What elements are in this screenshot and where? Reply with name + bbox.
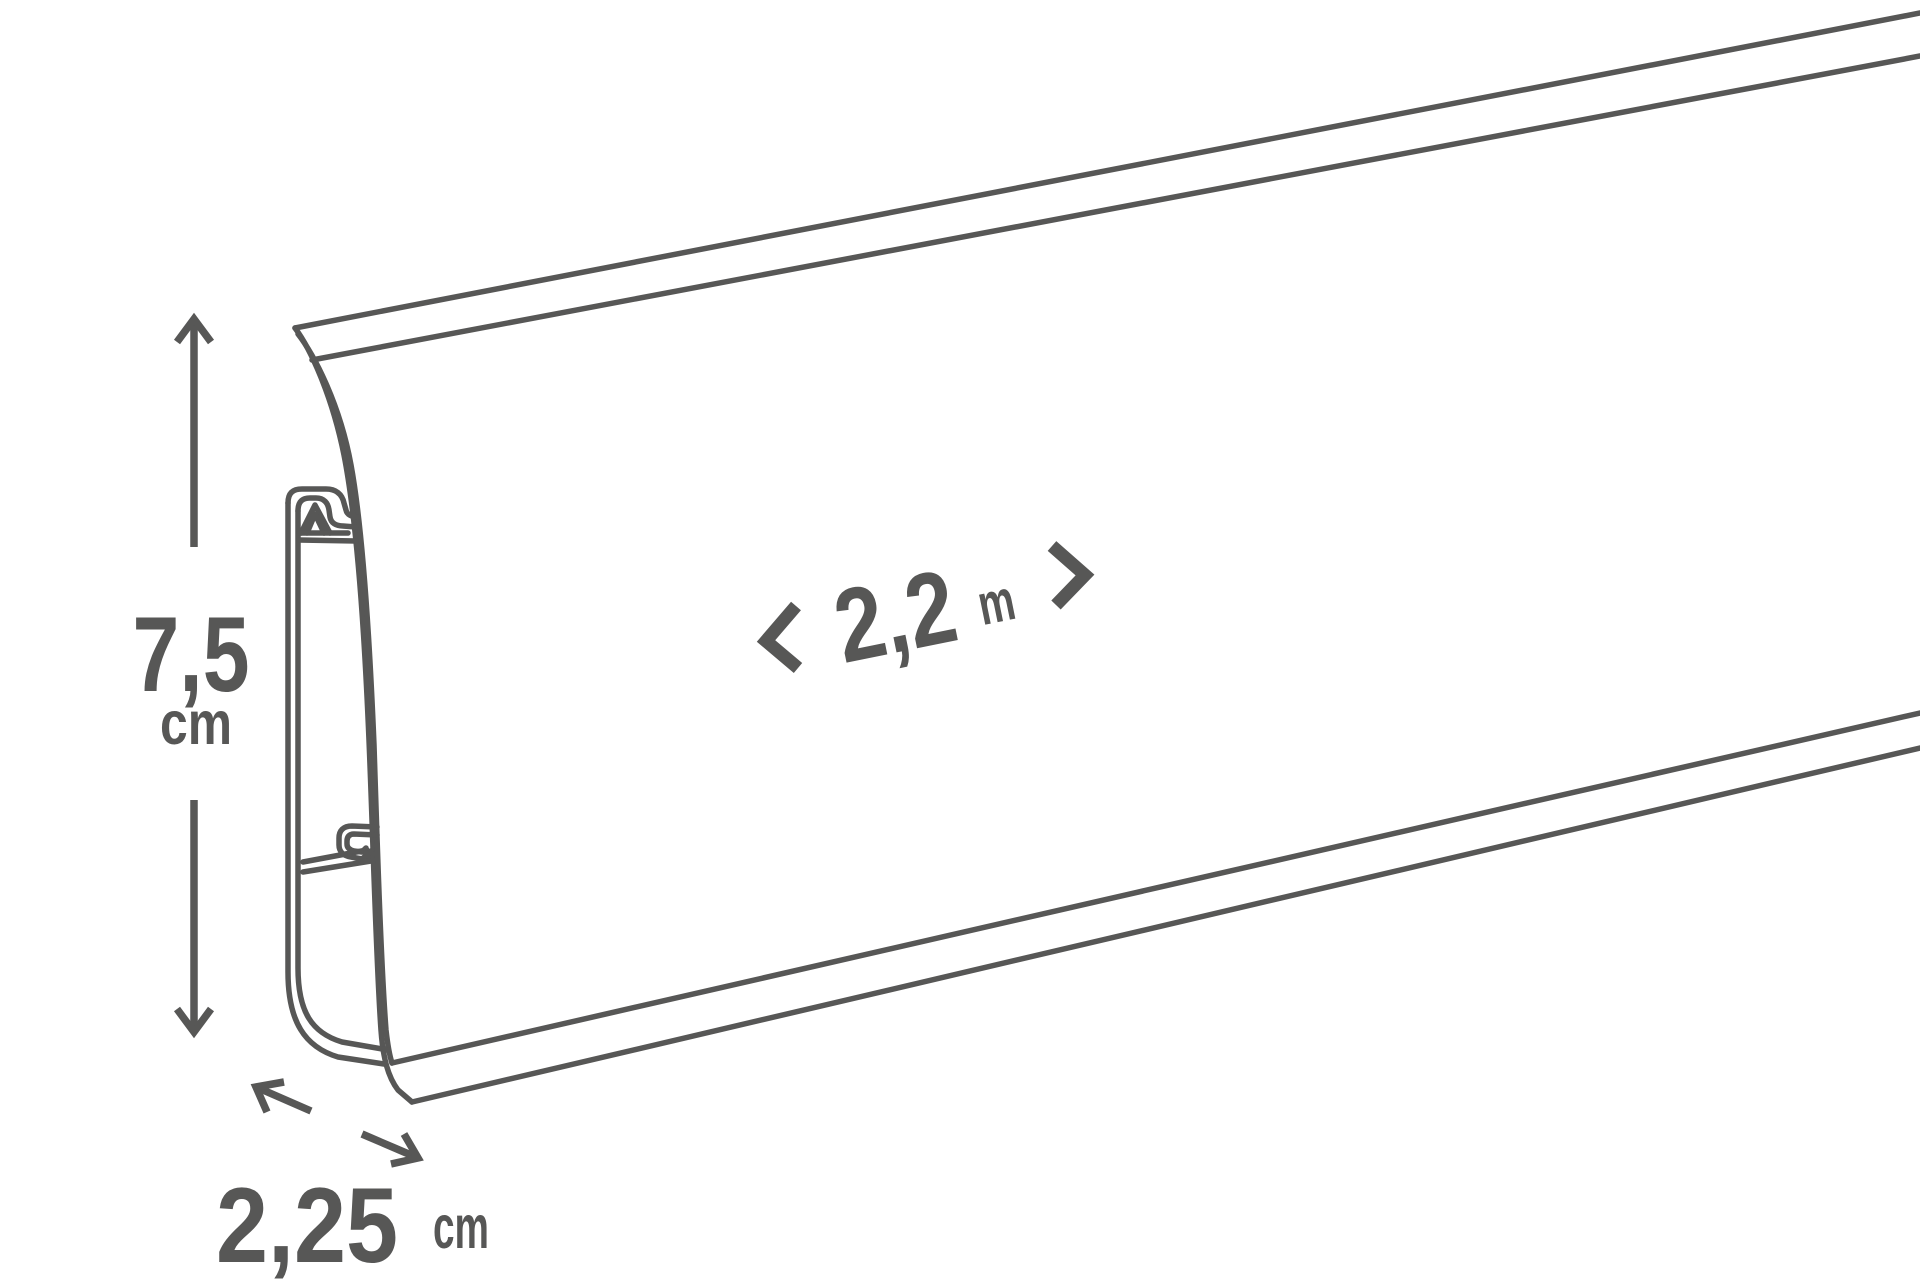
board-bottom-edge-lower — [412, 748, 1920, 1102]
height-dimension: 7,5 cm — [133, 319, 250, 1032]
length-dimension: 2,2 m — [766, 546, 1085, 686]
depth-unit-label: cm — [433, 1193, 489, 1261]
diagram-canvas: 7,5 cm 2,25 cm 2,2 m — [0, 0, 1920, 1280]
depth-dimension: 2,25 cm — [216, 1082, 489, 1280]
middle-hook-detail — [303, 826, 377, 872]
board-top-fold-line — [312, 56, 1920, 360]
board-bottom-edge-upper — [392, 713, 1920, 1063]
skirting-board-diagram: 7,5 cm 2,25 cm 2,2 m — [0, 0, 1920, 1280]
board-front-left-outer-curve — [295, 328, 412, 1102]
board-top-edge — [295, 13, 1920, 328]
height-unit-label: cm — [160, 689, 232, 757]
skirting-board-profile — [288, 13, 1920, 1102]
length-value-label: 2,2 — [825, 548, 966, 686]
length-unit-label: m — [972, 567, 1020, 638]
right-chevron-icon — [1052, 546, 1085, 605]
left-chevron-icon — [766, 606, 798, 668]
top-clip-base-lower — [299, 540, 356, 541]
depth-value-label: 2,25 — [216, 1165, 398, 1280]
